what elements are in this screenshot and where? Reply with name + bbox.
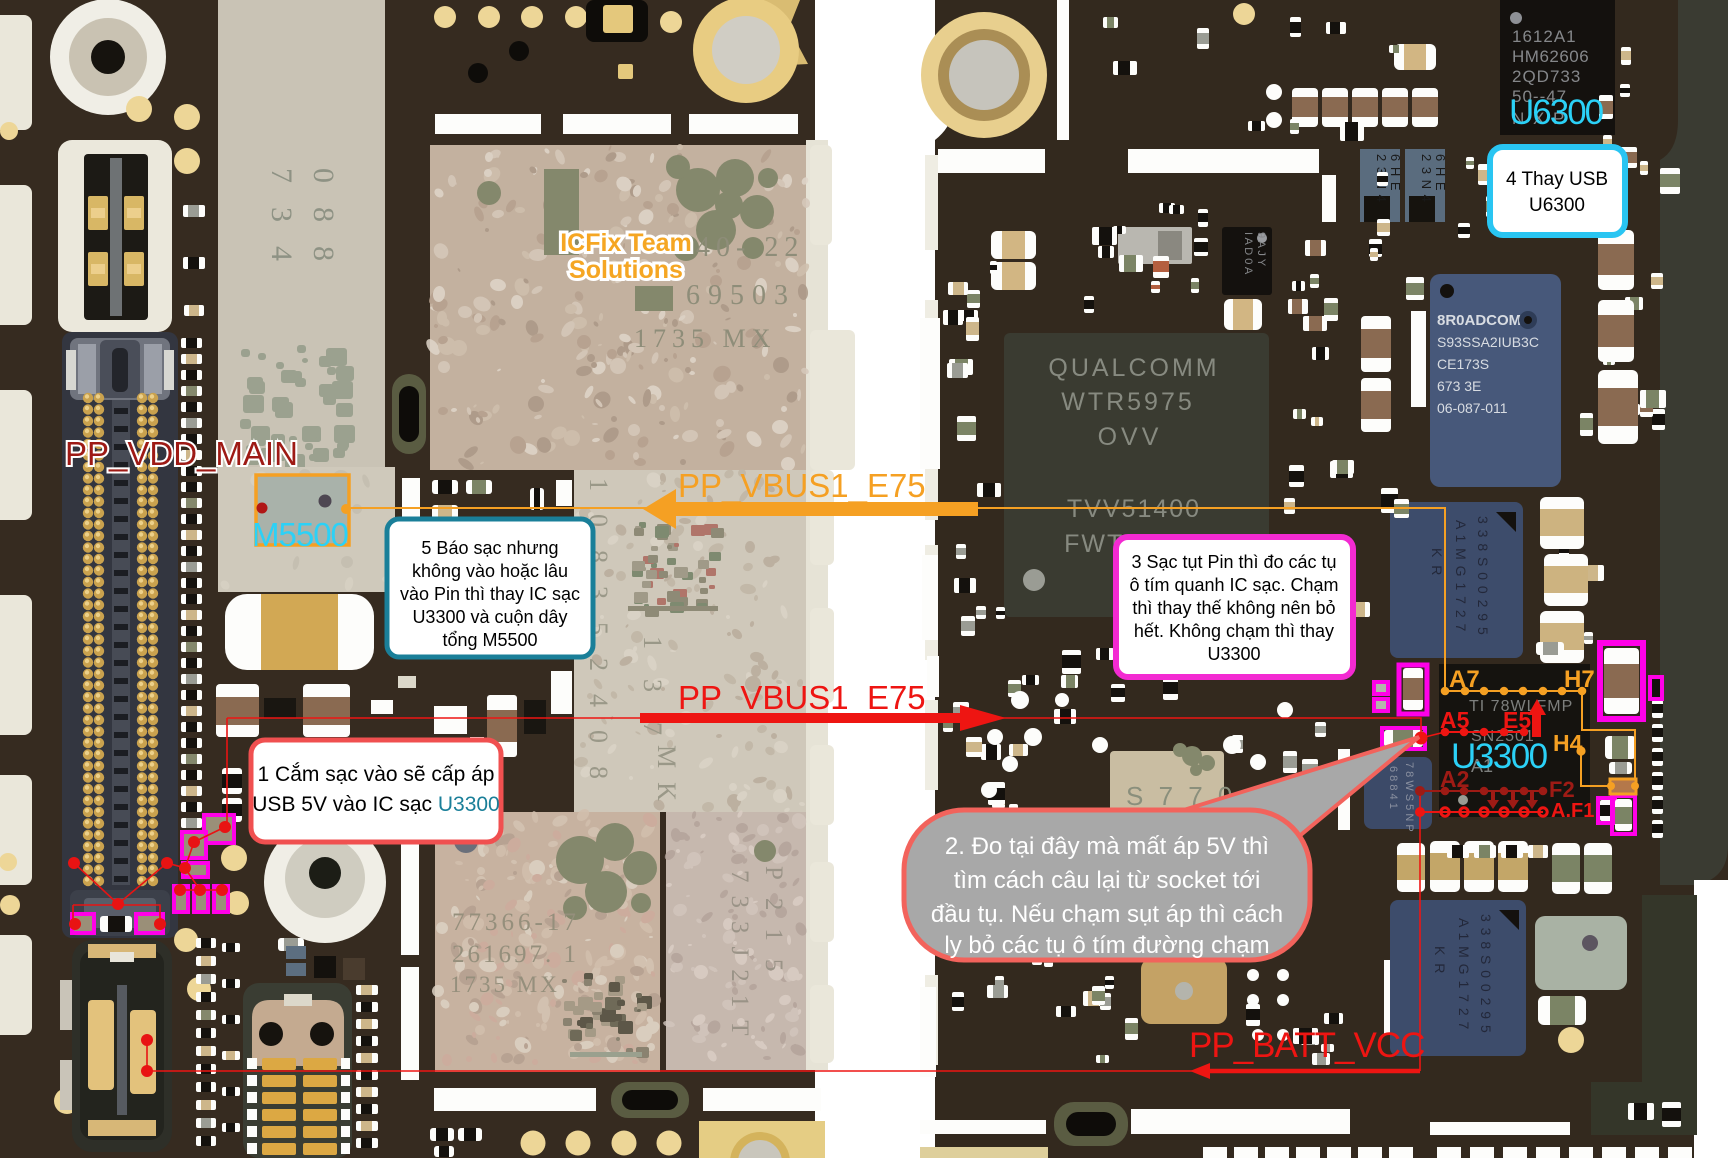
svg-text:P215: P215 [760,866,787,989]
svg-text:A 1 M G 1 7 2 7: A 1 M G 1 7 2 7 [1453,520,1469,632]
svg-text:ly bỏ các tụ ô tím đường chạm: ly bỏ các tụ ô tím đường chạm [944,932,1269,959]
svg-text:WTR5975: WTR5975 [1061,388,1195,416]
svg-text:tổng M5500: tổng M5500 [442,630,537,650]
svg-text:9 A J Y: 9 A J Y [1255,232,1267,267]
svg-text:088: 088 [307,168,340,285]
svg-text:PP_VDD_MAIN: PP_VDD_MAIN [65,435,298,472]
svg-text:A5: A5 [1440,707,1470,733]
svg-text:K R: K R [1432,946,1448,975]
svg-text:thì thay thế không nên bỏ: thì thay thế không nên bỏ [1132,598,1335,618]
svg-text:U3300 và cuộn dây: U3300 và cuộn dây [412,607,567,627]
svg-text:733J21T: 733J21T [726,870,753,1049]
svg-text:Solutions: Solutions [569,256,683,284]
svg-text:tìm cách câu lại từ socket tới: tìm cách câu lại từ socket tới [954,867,1261,894]
svg-text:1735 MX: 1735 MX [450,972,560,997]
svg-text:2. Đo tại đây mà mất áp 5V thì: 2. Đo tại đây mà mất áp 5V thì [945,833,1269,860]
svg-text:PP_BATT_VCC: PP_BATT_VCC [1189,1026,1424,1065]
svg-text:2QD733: 2QD733 [1512,67,1581,86]
svg-text:QUALCOMM: QUALCOMM [1048,354,1219,382]
svg-text:1735 MX: 1735 MX [634,324,776,353]
svg-text:3 3 8 S 0 0 2 9 5: 3 3 8 S 0 0 2 9 5 [1478,914,1494,1034]
svg-text:K R: K R [1429,548,1445,577]
svg-text:77366-17: 77366-17 [452,909,580,936]
svg-text:USB 5V vào IC sạc U3300: USB 5V vào IC sạc U3300 [252,793,499,816]
svg-text:hết. Không chạm thì thay: hết. Không chạm thì thay [1134,621,1334,641]
svg-text:261697. 1: 261697. 1 [452,941,579,968]
svg-text:CE173S: CE173S [1437,356,1489,372]
svg-text:không vào hoặc lâu: không vào hoặc lâu [412,561,568,581]
svg-text:2 3 N 4: 2 3 N 4 [1419,154,1434,203]
svg-text:đầu tụ. Nếu chạm sụt áp thì cá: đầu tụ. Nếu chạm sụt áp thì cách [931,901,1283,928]
svg-text:PP_VBUS1_E75: PP_VBUS1_E75 [678,679,926,716]
svg-text:06-087-011: 06-087-011 [1437,400,1508,416]
svg-text:6 8 8 4 1: 6 8 8 4 1 [1387,766,1399,809]
svg-text:8R0ADCOM: 8R0ADCOM [1437,312,1521,329]
svg-text:4 Thay USB: 4 Thay USB [1506,169,1608,190]
svg-text:F2: F2 [1549,777,1575,802]
svg-text:S93SSA2IUB3C: S93SSA2IUB3C [1437,334,1539,350]
svg-text:3 3 8 S 0 0 2 9 5: 3 3 8 S 0 0 2 9 5 [1475,516,1491,636]
svg-text:PP_VBUS1_E75: PP_VBUS1_E75 [678,467,926,504]
svg-text:6 H E: 6 H E [1388,154,1403,192]
svg-text:5 Báo sạc nhưng: 5 Báo sạc nhưng [421,538,558,558]
svg-text:40- 22: 40- 22 [696,232,804,263]
svg-text:M5500: M5500 [252,516,349,553]
svg-text:A 1 M G 1 7 2 7: A 1 M G 1 7 2 7 [1456,918,1472,1030]
svg-text:A.F1: A.F1 [1551,800,1594,822]
svg-text:ô tím quanh IC sạc. Chạm: ô tím quanh IC sạc. Chạm [1129,575,1338,595]
svg-text:1612A1: 1612A1 [1512,27,1577,46]
svg-text:ICFix Team: ICFix Team [560,229,692,257]
svg-text:H4: H4 [1553,730,1583,756]
svg-text:U6300: U6300 [1529,195,1585,216]
svg-text:U3300: U3300 [1207,644,1260,664]
svg-text:6 H E: 6 H E [1433,154,1448,192]
svg-text:MK: MK [652,745,681,815]
svg-text:I A D 0 A: I A D 0 A [1242,232,1254,275]
svg-text:HM62606: HM62606 [1512,47,1589,66]
svg-text:3 Sạc tụt Pin thì đo các tụ: 3 Sạc tụt Pin thì đo các tụ [1131,552,1336,572]
svg-text:A7: A7 [1449,666,1480,693]
svg-text:673 3E: 673 3E [1437,378,1481,394]
svg-text:E5: E5 [1503,707,1531,733]
svg-text:734: 734 [265,168,298,285]
svg-text:1 Cắm sạc vào sẽ cấp áp: 1 Cắm sạc vào sẽ cấp áp [258,763,495,786]
svg-text:69503: 69503 [686,280,796,311]
svg-text:H7: H7 [1564,666,1595,693]
svg-text:vào Pin thì thay IC sạc: vào Pin thì thay IC sạc [400,584,580,604]
svg-text:7 8 W S 5 N P: 7 8 W S 5 N P [1403,762,1415,832]
svg-text:U6300: U6300 [1509,93,1604,132]
svg-text:OVV: OVV [1098,423,1163,451]
svg-text:U3300: U3300 [1451,737,1548,776]
